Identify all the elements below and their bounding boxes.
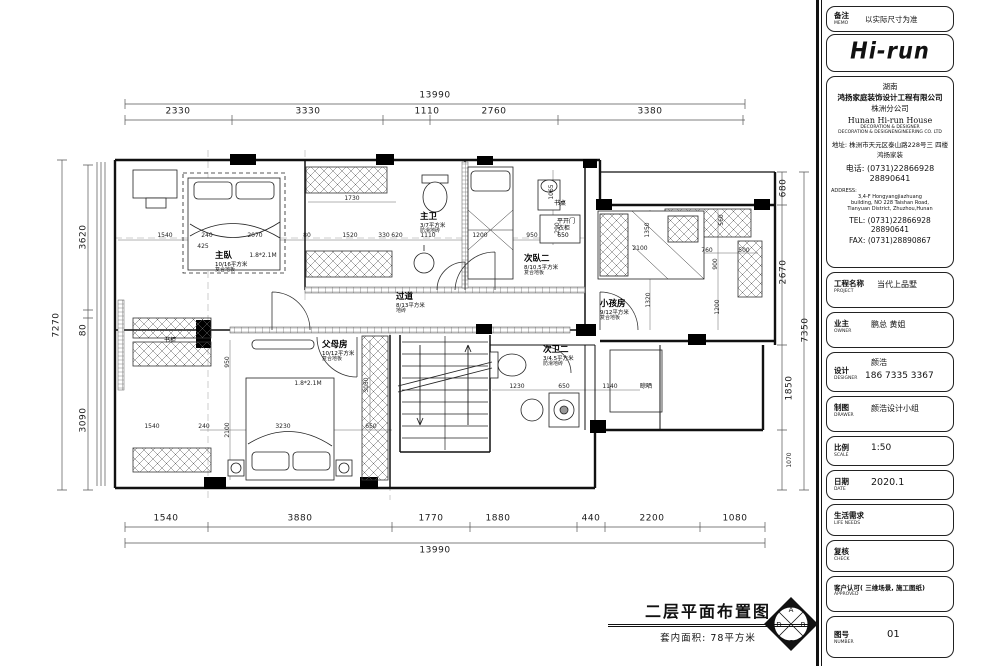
dim-label: 2100 [225,422,231,437]
dim-label: 1070 [787,452,793,467]
dim-label: 1200 [472,233,487,239]
dim-label: 3050 [364,377,370,392]
drawing-title: 二层平面布置图 套内面积: 78平方米 [608,598,808,644]
dim-label: 3880 [288,515,313,524]
dim-label: 950 [526,233,537,239]
dim-label: 3230 [275,424,290,430]
dim-label: 1880 [486,515,511,524]
designer-name: 颜浩 [871,357,887,368]
scale-value: 1:50 [871,443,891,453]
dim-label: 3330 [296,108,321,117]
dim-label: 3620 [80,225,89,250]
sheet-divider [816,0,819,666]
dim-label: 680 [780,179,789,198]
master-sink [414,253,434,273]
drawer-box: 制图 DRAWER 颜浩设计小组 [826,396,954,432]
dim-label: 2670 [780,260,789,285]
dim-label: 620 [391,233,402,239]
owner-value: 鹏总 黄姐 [871,319,906,330]
annotation-label: 晾晒 [640,384,652,390]
drawing-title-text: 二层平面布置图 [608,598,808,627]
room-label-master-bath: 主卫 3/7平方米 防滑地砖 [420,213,445,235]
owner-box: 业主 OWNER 鹏总 黄姐 [826,312,954,348]
room-label-second-bedroom: 次臥二 8/10.5平方米 复合地板 [524,255,558,277]
laundry-rack [610,350,662,412]
designer-phone: 186 7335 3367 [865,371,934,381]
designer-box: 设计 DESIGNER 颜浩 186 7335 3367 [826,352,954,392]
memo-value: 以实际尺寸为准 [865,14,918,25]
company-fax: FAX: (0731)28890867 [827,236,953,245]
floor-plan-area: A D B C 13990233033301110276033801399015… [0,0,820,666]
dim-label: 80 [80,324,89,336]
number-box: 图号 NUMBER 01 [826,616,954,658]
dim-label: 240 [201,233,212,239]
dim-label: 2200 [640,515,665,524]
room-label-parents-room: 父母房 10/12平方米 复合地板 [322,341,354,363]
dim-label: 2330 [166,108,191,117]
dim-label: 3090 [80,408,89,433]
dim-label: 13990 [419,547,450,556]
balcony-glazing [97,162,105,486]
memo-label: 备注 [834,10,849,21]
company-region: 湖南 [827,81,953,92]
toilet-tank-2 [490,352,498,378]
dim-label: 1350 [645,222,651,237]
dim-label: 80 [303,233,311,239]
drawing-sheet: { "plan": { "title": "二层平面布置图", "subtitl… [0,0,1000,666]
company-name: 鸿扬家庭装饰设计工程有限公司 [827,92,953,103]
dim-label: 2760 [482,108,507,117]
dim-label: 1520 [342,233,357,239]
life-needs-box: 生活需求 LIFE NEEDS [826,504,954,536]
dim-label: 1.8*2.1M [294,381,321,387]
check-box: 复核 CHECK [826,540,954,572]
dim-label: 7350 [802,318,811,343]
company-address: 地址: 株洲市天元区泰山路228号三 四楼 [827,139,953,149]
dim-label: 425 [197,244,208,250]
project-value: 当代上品墅 [877,279,917,290]
dim-label: 1770 [419,515,444,524]
dim-label: 650 [558,384,569,390]
room-label-corridor: 过道 8/13平方米 地砖 [396,293,425,315]
dim-label: 3380 [638,108,663,117]
dim-label: 440 [582,515,601,524]
second-toilet [498,354,526,376]
drawer-value: 颜浩设计小组 [871,403,919,414]
dim-label: 1080 [723,515,748,524]
company-box: 湖南 鸿扬家庭装饰设计工程有限公司 株洲分公司 Hunan Hi-run Hou… [826,76,954,268]
tv-cabinet [252,340,314,349]
company-tel-en: TEL: (0731)22866928 [827,216,953,225]
number-value: 01 [887,629,900,640]
dim-label: 760 [701,248,712,254]
sheet-divider-thin [821,0,822,666]
dim-label: 950 [225,356,231,367]
dim-label: 1540 [154,515,179,524]
master-toilet [423,182,447,212]
project-box: 工程名称 PROJECT 当代上品墅 [826,272,954,308]
dim-label: 1230 [509,384,524,390]
approved-box: 客户认可( 三维场景, 施工图纸) APPROVED [826,576,954,612]
dim-label: 2100 [632,246,647,252]
company-logo: Hi-run [827,38,953,64]
scale-box: 比例 SCALE 1:50 [826,436,954,466]
company-name-en: Hunan Hi-run House [827,116,953,125]
staircase [398,336,492,450]
second-sink [521,399,543,421]
dim-label: 560 [719,214,725,225]
memo-box: 备注 MEMO 以实际尺寸为准 [826,6,954,32]
annotation-label: 书桌 [554,201,566,207]
dim-label: 650 [365,424,376,430]
annotation-label: 书柜 [164,338,176,344]
dim-label: 2070 [247,233,262,239]
dim-label: 1850 [786,376,795,401]
date-value: 2020.1 [871,477,904,488]
date-box: 日期 DATE 2020.1 [826,470,954,500]
dim-label: 1730 [344,196,359,202]
logo-box: Hi-run [826,34,954,72]
dim-label: 1540 [144,424,159,430]
furniture [133,167,704,480]
dim-label: 330 [378,233,389,239]
dim-label: 900 [713,258,719,269]
dim-label: 7270 [53,313,62,338]
dim-label: 1320 [646,292,652,307]
room-label-master-bedroom: 主臥 10/16平方米 复合地板 [215,252,247,274]
company-tel: 电话: (0731)22866928 [827,163,953,174]
dim-label: 13990 [419,92,450,101]
dim-label: 1065 [549,184,555,199]
floor-plan-drawing: A D B C [0,0,820,666]
room-label-second-bath: 次卫二 3/4.5平方米 防滑地砖 [543,346,574,368]
dim-label: 1200 [715,299,721,314]
room-label-kids-room: 小孩房 9/12平方米 复合地板 [600,300,629,322]
drawing-subtitle-text: 套内面积: 78平方米 [608,630,808,644]
dim-label: 1140 [602,384,617,390]
dim-label: 500 [738,248,749,254]
company-branch: 株洲分公司 [827,103,953,114]
dim-label: 1540 [157,233,172,239]
annotation-label: 650 [557,233,568,239]
dim-label: 1110 [415,108,440,117]
dim-label: 1.8*2.1M [249,253,276,259]
dim-label: 240 [198,424,209,430]
